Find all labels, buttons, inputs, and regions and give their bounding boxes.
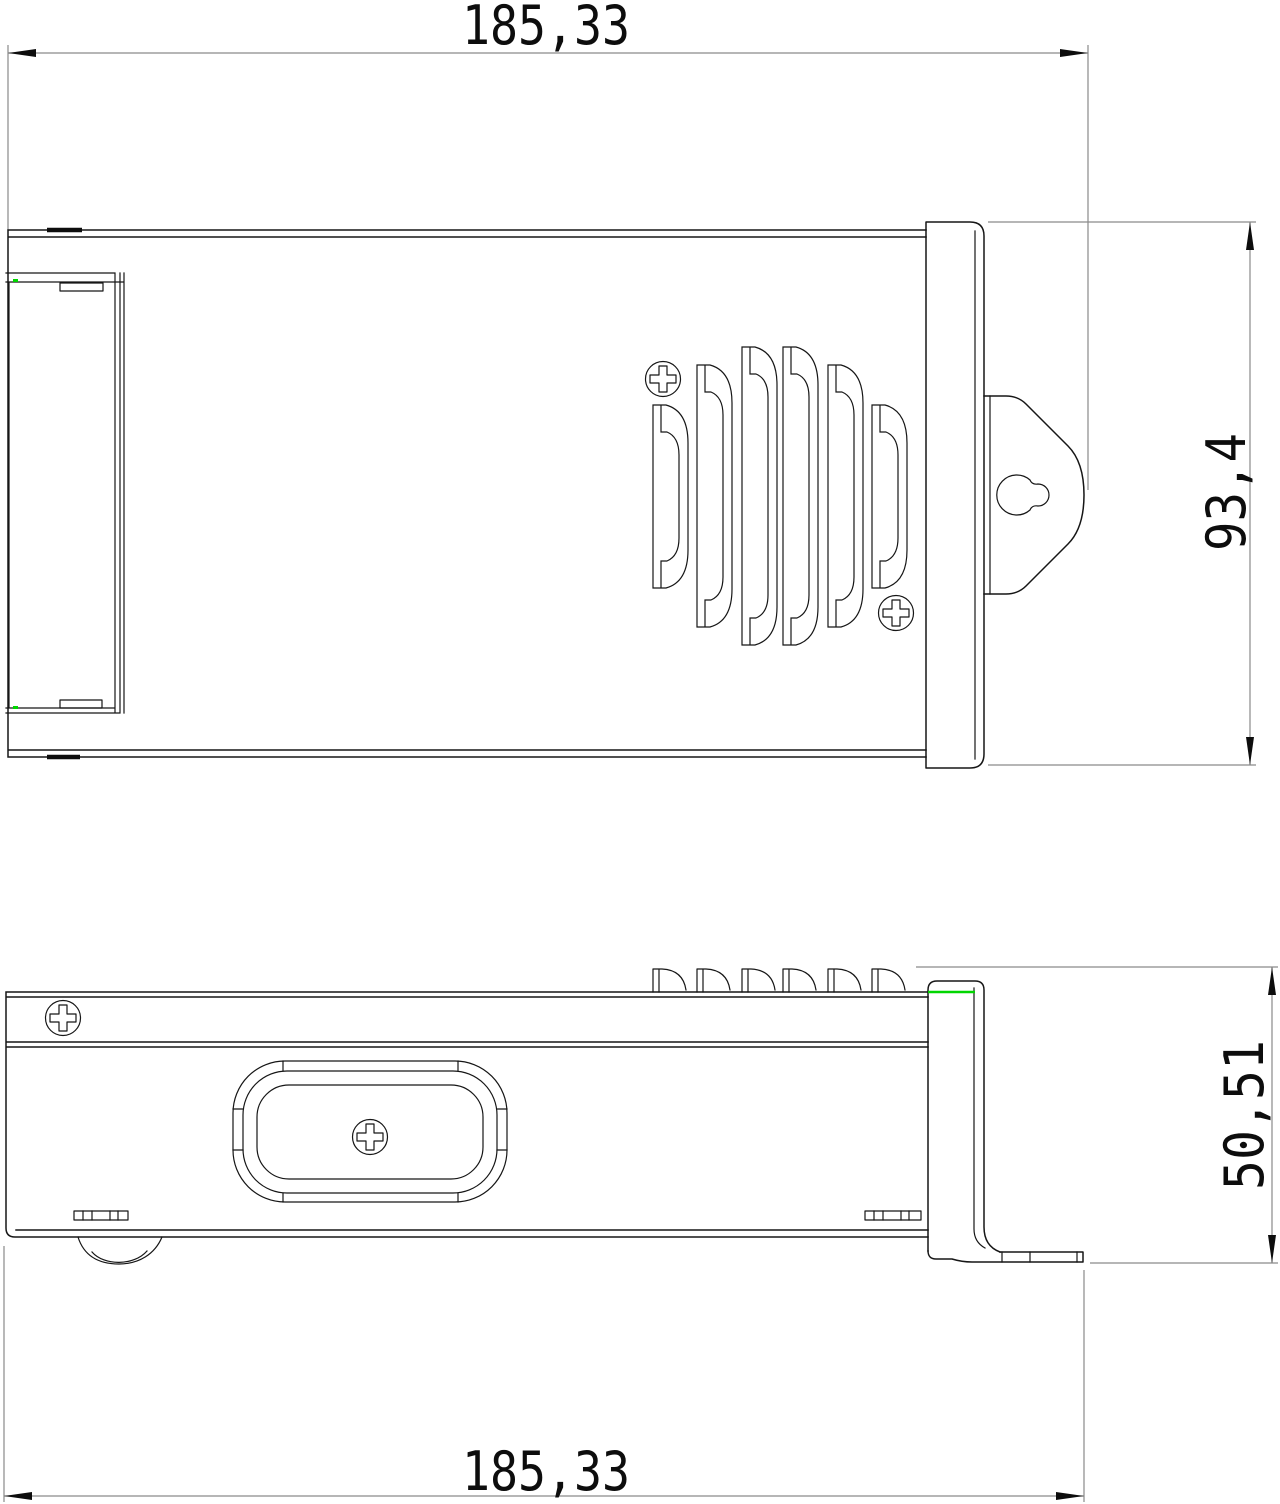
dimension-label-top-width: 185,33 [462, 0, 630, 57]
dimension-arrow-right [1060, 49, 1088, 57]
panel-tab-top [60, 283, 103, 291]
vent-slits-left [74, 1211, 128, 1220]
screw-side-center-icon [353, 1120, 388, 1155]
body-outline [8, 230, 926, 757]
louver-tabs [653, 969, 905, 992]
dimension-label-side-height: 50,51 [1213, 1040, 1276, 1190]
panel-tab-bottom [60, 700, 102, 708]
mounting-flange [984, 396, 1084, 594]
dimension-label-bottom-width: 185,33 [462, 1440, 630, 1503]
dimension-label-overall-height: 93,4 [1195, 433, 1258, 551]
dimension-arrow-left [8, 49, 36, 57]
dimension-side-height: 50,51 [916, 967, 1278, 1263]
keyhole-slot [997, 475, 1049, 515]
access-panel [6, 273, 124, 713]
dimension-arrow-right [1056, 1492, 1084, 1500]
end-cap-top-view [926, 222, 984, 768]
rubber-foot [78, 1237, 162, 1264]
louver-1 [653, 405, 688, 588]
vent-slits-right [865, 1211, 921, 1220]
dimension-arrow-left [4, 1492, 32, 1500]
dimension-overall-height: 93,4 [988, 222, 1258, 765]
top-view [6, 222, 1084, 768]
obround-corner-ticks [233, 1061, 507, 1202]
louver-3 [742, 347, 777, 645]
side-view [6, 969, 1083, 1264]
louver-2 [697, 365, 732, 627]
panel-highlight-bottom [13, 706, 18, 709]
louver-6 [872, 405, 907, 588]
dimension-arrow-up [1246, 222, 1254, 250]
mounting-bracket [928, 1251, 1083, 1262]
dimension-arrow-down [1268, 1235, 1276, 1263]
screw-bottom-right-icon [879, 596, 914, 631]
dimension-bottom-width: 185,33 [4, 1246, 1084, 1503]
screw-top-left-icon [646, 362, 681, 397]
vent-louvers [653, 347, 907, 645]
recessed-obround [233, 1061, 507, 1202]
panel-highlight-top [13, 279, 18, 282]
screw-side-left-icon [46, 1001, 81, 1036]
technical-drawing: 185,33 [0, 0, 1280, 1504]
dimension-arrow-up [1268, 967, 1276, 995]
drawing-page: 185,33 [0, 0, 1280, 1504]
louver-5 [828, 365, 863, 627]
end-cap-side-view [928, 981, 1000, 1252]
dimension-arrow-down [1246, 737, 1254, 765]
louver-4 [783, 347, 818, 645]
